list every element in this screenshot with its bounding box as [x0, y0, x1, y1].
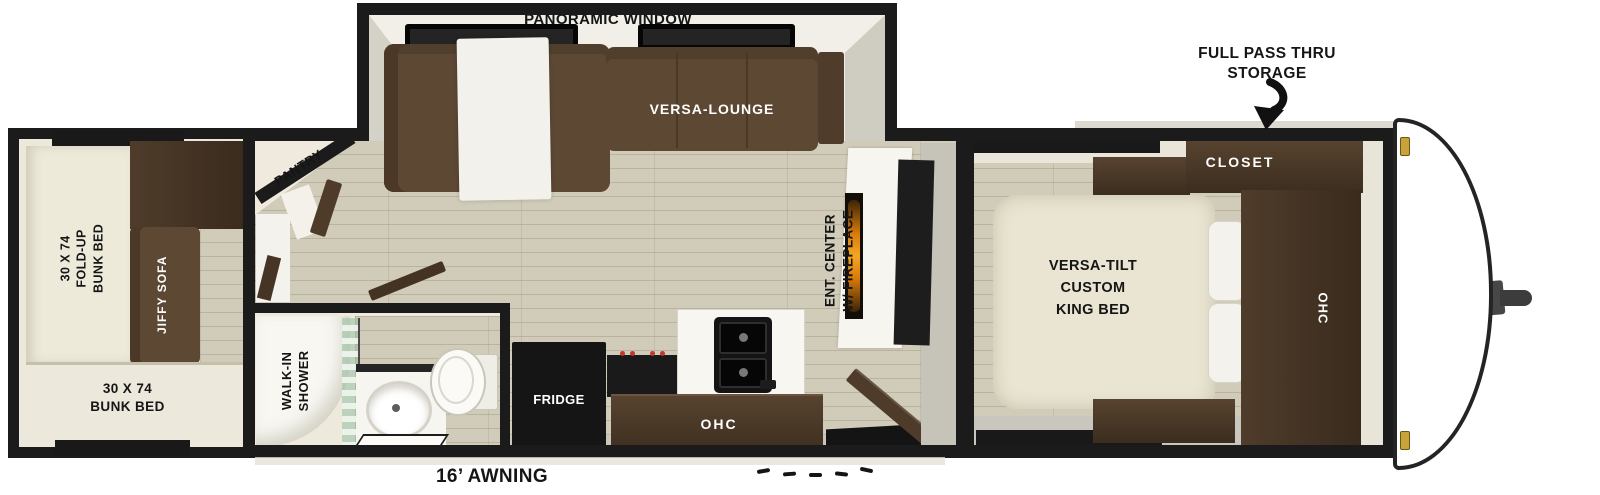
pass-thru-label-line: FULL PASS THRU — [1172, 44, 1362, 64]
bedroom-divider-wall — [956, 128, 974, 458]
bedroom-ohc-label: OHC — [1314, 278, 1331, 338]
toilet-seat — [438, 356, 474, 404]
versa-lounge-label: VERSA-LOUNGE — [612, 100, 812, 118]
fold-up-bunk-label: 30 X 74 FOLD-UP BUNK BED — [58, 208, 107, 308]
front-wall-gap — [1361, 140, 1383, 446]
front-cap — [1393, 118, 1493, 470]
main-wall-top-left — [243, 128, 369, 141]
slideout-wall-left — [357, 3, 369, 141]
versa-lounge-sofa — [606, 47, 818, 151]
fold-up-bunk-label-line: FOLD-UP — [74, 208, 90, 308]
door-swing-dash — [783, 472, 796, 477]
floorplan: 30 X 74 FOLD-UP BUNK BED JIFFY SOFA 30 X… — [0, 0, 1600, 495]
faucet — [760, 380, 776, 389]
bunk-bed-label-line: BUNK BED — [45, 398, 210, 416]
lounge-blanket — [457, 37, 552, 201]
bunk-divider — [26, 362, 244, 365]
slideout-wall-top — [357, 3, 897, 15]
awning-rail — [255, 457, 945, 465]
slideout-wall-right — [885, 3, 897, 141]
rear-cabinet — [130, 141, 244, 229]
door-swing-dash — [835, 471, 848, 476]
rear-room-window-bottom — [55, 440, 190, 456]
door-swing-dash — [809, 473, 822, 477]
main-wall-left — [243, 128, 255, 458]
fold-up-bunk-label-line: BUNK BED — [90, 208, 106, 308]
hitch-coupler — [1500, 290, 1532, 306]
king-bed-label-line: KING BED — [1013, 300, 1173, 322]
sink-drain — [739, 368, 748, 377]
king-bed-label: VERSA-TILT CUSTOM KING BED — [1013, 256, 1173, 321]
bedroom-ohc-wardrobe — [1241, 190, 1361, 455]
ent-center-label-line: ENT. CENTER — [821, 186, 839, 336]
walk-in-shower-label: WALK-IN SHOWER — [279, 321, 313, 441]
closet-label: CLOSET — [1175, 153, 1305, 171]
bunk-bed-label-line: 30 X 74 — [45, 380, 210, 398]
fold-up-bunk-label-line: 30 X 74 — [58, 208, 74, 308]
sink-drain — [739, 333, 748, 342]
clearance-marker — [1400, 431, 1410, 450]
shower-label-line: SHOWER — [296, 321, 313, 441]
jiffy-sofa-label: JIFFY SOFA — [155, 230, 171, 360]
pass-thru-arrow-icon — [1228, 78, 1298, 132]
ent-center-label-line: W/ FIREPLACE — [839, 186, 857, 336]
stove-knob — [650, 351, 655, 356]
stove-knob — [660, 351, 665, 356]
door-swing-dash — [860, 467, 874, 474]
end-table — [818, 52, 844, 144]
stove-knob — [620, 351, 625, 356]
stove — [607, 355, 680, 397]
door-swing-dash — [757, 468, 770, 474]
bedroom-foot-cabinet — [1093, 399, 1235, 443]
sink-drain — [392, 404, 400, 412]
king-bed-label-line: VERSA-TILT — [1013, 256, 1173, 278]
ent-center-label: ENT. CENTER W/ FIREPLACE — [821, 186, 856, 336]
rear-room-floor — [200, 228, 244, 364]
bunk-bed-label: 30 X 74 BUNK BED — [45, 380, 210, 415]
shower-label-line: WALK-IN — [279, 321, 296, 441]
fridge-label: FRIDGE — [514, 392, 604, 409]
clearance-marker — [1400, 137, 1410, 156]
kitchen-ohc-label: OHC — [619, 415, 819, 433]
stove-knob — [630, 351, 635, 356]
tv — [894, 160, 935, 346]
king-bed-label-line: CUSTOM — [1013, 278, 1173, 300]
awning-label: 16’ AWNING — [412, 465, 572, 490]
